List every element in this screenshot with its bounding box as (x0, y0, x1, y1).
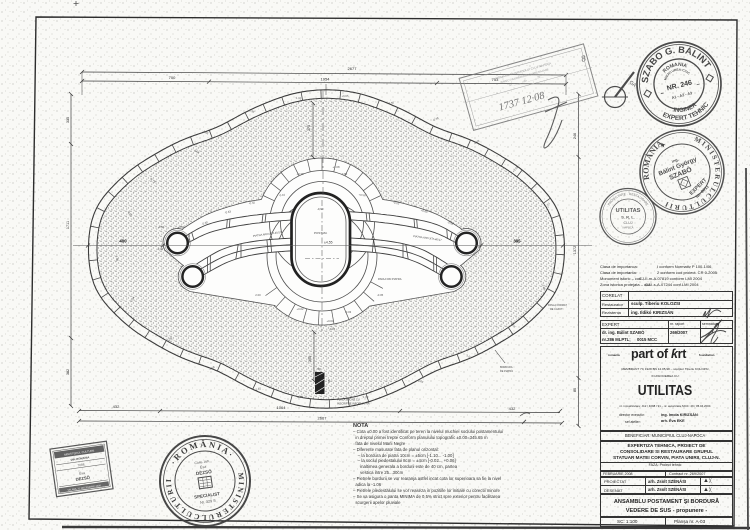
svg-text:-0.10: -0.10 (279, 193, 286, 198)
svg-text:375: 375 (307, 125, 311, 131)
svg-text:700: 700 (169, 75, 176, 80)
svg-text:1711: 1711 (66, 221, 70, 229)
svg-text:1064: 1064 (277, 405, 287, 410)
svg-text:1954: 1954 (321, 77, 331, 82)
svg-text:+2.08: +2.08 (332, 165, 340, 169)
svg-text:+0.60: +0.60 (177, 225, 185, 229)
svg-text:+0.60: +0.60 (326, 319, 334, 323)
svg-text:25: 25 (327, 379, 331, 383)
svg-text:300: 300 (308, 356, 312, 362)
svg-text:PANLA FORMAT: PANLA FORMAT (548, 304, 567, 307)
svg-text:PLACA BRONZ CU: PLACA BRONZ CU (337, 398, 360, 402)
svg-text:400: 400 (119, 239, 127, 244)
svg-text:Éva: Éva (200, 464, 207, 470)
svg-text:382: 382 (66, 369, 70, 375)
svg-text:-1.05: -1.05 (295, 96, 302, 101)
svg-text:-0.02: -0.02 (157, 247, 164, 251)
svg-text:432: 432 (509, 406, 516, 411)
svg-text:INSCRIPTIE INFORMATIVA: INSCRIPTIE INFORMATIVA (337, 402, 370, 406)
svg-text:-0.88: -0.88 (297, 395, 304, 399)
svg-text:395: 395 (514, 239, 522, 244)
svg-text:2667: 2667 (318, 416, 328, 421)
svg-text:2677: 2677 (348, 66, 358, 71)
svg-text:246: 246 (573, 133, 577, 139)
svg-text:-0.03: -0.03 (345, 310, 352, 314)
svg-text:+0.05: +0.05 (341, 94, 349, 98)
svg-text:PAVAJ DIN PIATRA: PAVAJ DIN PIATRA (378, 277, 402, 281)
svg-text:S. R. L.: S. R. L. (621, 215, 635, 220)
svg-text:-1.02: -1.02 (362, 395, 369, 400)
svg-text:432: 432 (113, 404, 120, 409)
svg-text:±4,55: ±4,55 (324, 241, 333, 245)
svg-text:-0,90: -0,90 (317, 207, 324, 211)
svg-text:+0.02: +0.02 (296, 307, 304, 311)
svg-text:+0.58: +0.58 (358, 193, 366, 198)
svg-text:335: 335 (66, 117, 70, 123)
svg-text:NAPOCA: NAPOCA (623, 226, 634, 230)
svg-text:BORDURA: BORDURA (500, 366, 513, 369)
svg-text:2.00: 2.00 (255, 293, 261, 297)
svg-text:-0.15: -0.15 (329, 327, 336, 331)
svg-text:-0.80: -0.80 (341, 172, 348, 176)
svg-text:50: 50 (317, 367, 321, 371)
svg-text:CLUJ: CLUJ (624, 221, 633, 225)
svg-text:DE PIATRA: DE PIATRA (500, 370, 513, 373)
svg-text:1372: 1372 (573, 246, 577, 254)
svg-text:UTILITAS: UTILITAS (616, 208, 641, 214)
svg-text:POSTAM.: POSTAM. (314, 231, 327, 235)
svg-text:-0.05: -0.05 (377, 293, 384, 297)
svg-text:-0.60: -0.60 (158, 225, 165, 229)
svg-text:+0.38: +0.38 (296, 172, 304, 176)
svg-text:80: 80 (573, 388, 577, 392)
svg-text:DE CAZUT: DE CAZUT (550, 308, 563, 311)
